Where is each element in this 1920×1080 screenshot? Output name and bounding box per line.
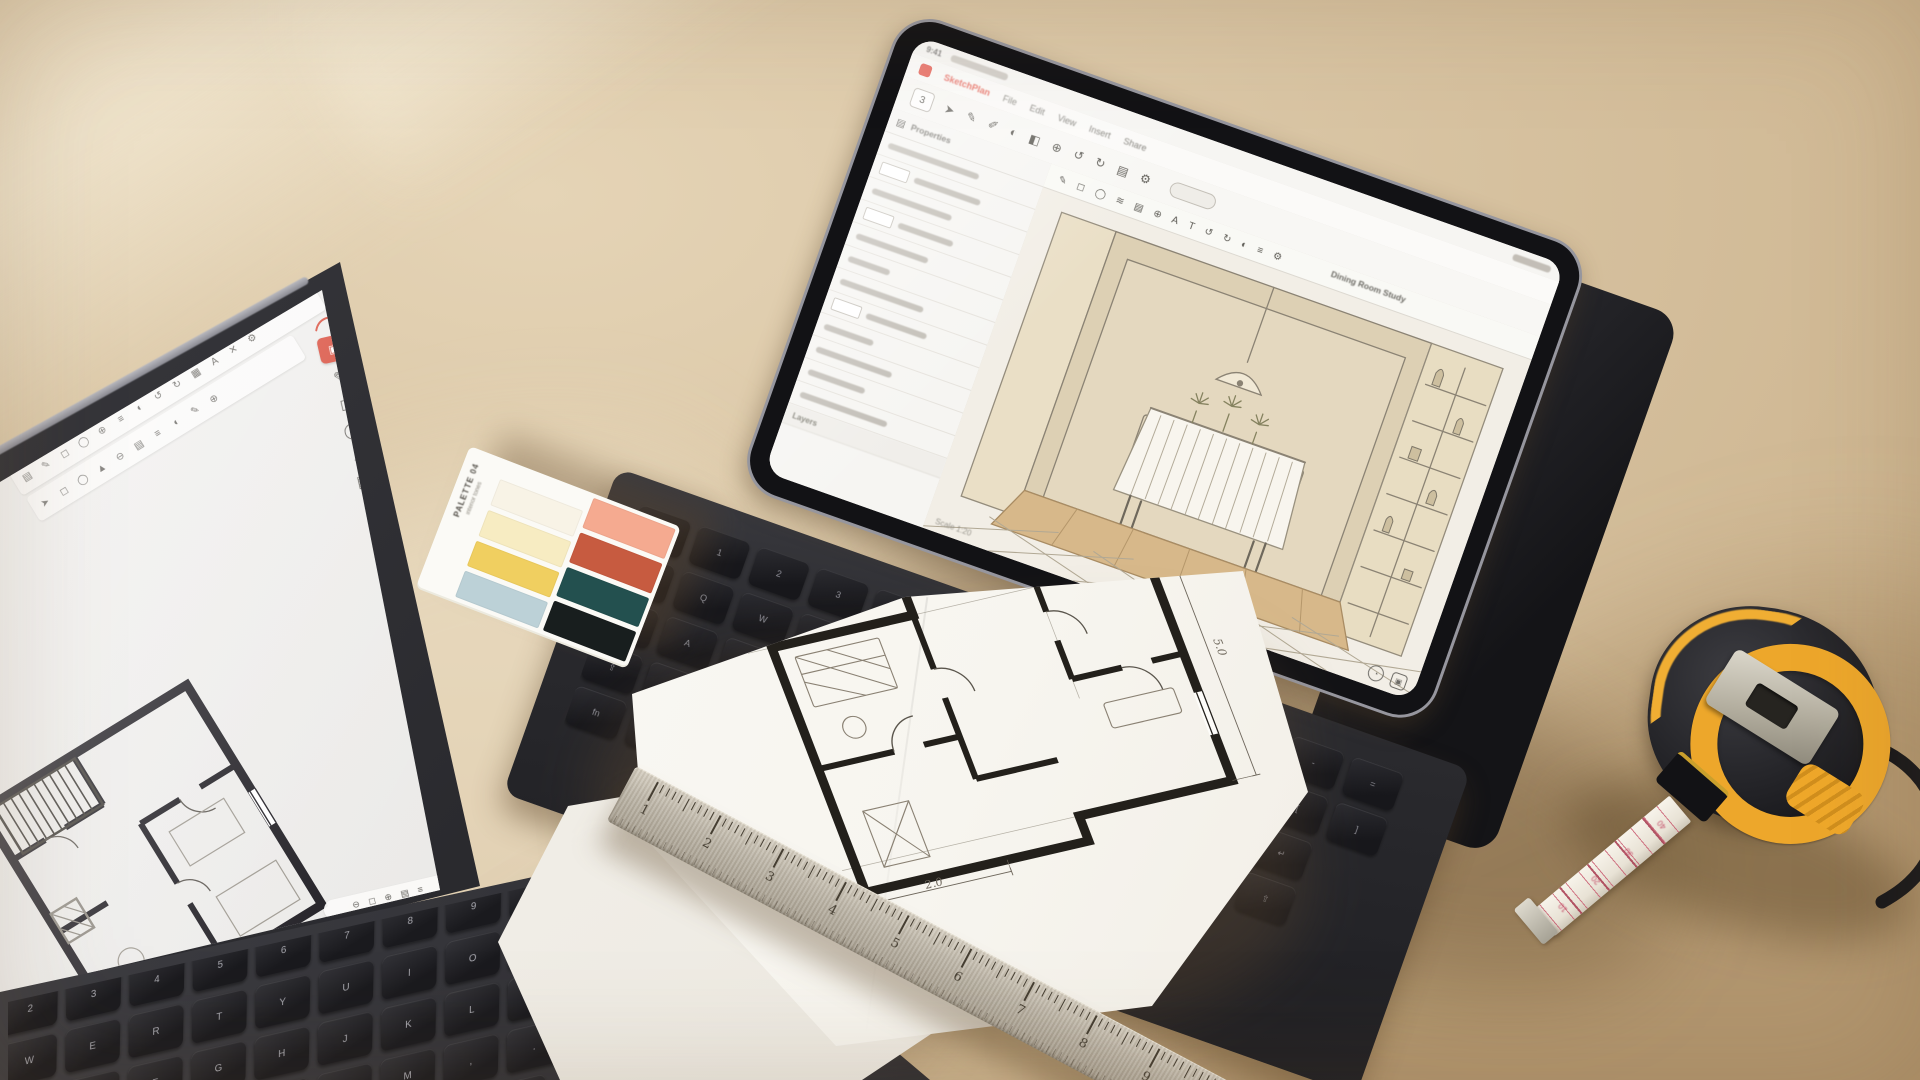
ruler-number: 1 <box>637 802 651 819</box>
tool-icon: 40 <box>1655 818 1668 831</box>
input-box <box>830 297 863 319</box>
tool-icon: ↺ <box>1072 147 1086 164</box>
key: R <box>128 1003 183 1059</box>
tool-icon: ✐ <box>986 117 1000 134</box>
tool-icon: 30 <box>1622 846 1635 859</box>
tool-icon: ↻ <box>1221 232 1233 245</box>
tool-icon: ▤ <box>1115 163 1130 180</box>
key: G <box>191 1040 246 1080</box>
tool-icon: ⊕ <box>1152 208 1164 221</box>
tool-icon: A <box>1170 214 1180 227</box>
tool-icon: ↺ <box>1203 226 1215 239</box>
key: M <box>380 1048 435 1080</box>
key: , <box>443 1033 498 1080</box>
tape-measure <box>1630 596 1920 936</box>
tool-icon: ↻ <box>1093 155 1107 172</box>
menu-item: File <box>1001 93 1018 107</box>
key: L <box>444 981 499 1037</box>
clip-slot <box>1744 682 1799 730</box>
tool-icon: ⚙ <box>1271 250 1283 263</box>
tool-icon: T <box>1187 220 1196 232</box>
tool-icon: ▤ <box>1133 201 1146 215</box>
key: U <box>318 959 373 1015</box>
input-box <box>862 207 895 229</box>
key: H <box>254 1025 309 1080</box>
menu-item: View <box>1056 113 1078 129</box>
key: 2 <box>747 546 811 602</box>
key: F <box>127 1055 182 1080</box>
tool-icon: ◐ <box>1239 239 1248 251</box>
key: E <box>65 1018 120 1074</box>
tool-icon: ◻ <box>1075 180 1087 193</box>
tool-icon: ➤ <box>943 101 957 118</box>
panel-icon: ▤ <box>895 117 908 131</box>
key: ] <box>1325 801 1389 857</box>
key: I <box>382 945 437 1001</box>
tool-icon: 20 <box>1589 873 1602 886</box>
tool-icon: 10 <box>1556 901 1569 914</box>
key: O <box>445 930 500 986</box>
key: W <box>2 1032 57 1080</box>
tool-icon: ≡ <box>1256 244 1265 256</box>
tool-icon: ◐ <box>1008 125 1020 141</box>
menu-item: Share <box>1122 136 1148 153</box>
menu-item: Insert <box>1088 124 1113 141</box>
key: W <box>731 591 795 647</box>
app-logo <box>918 63 933 78</box>
key: Y <box>255 974 310 1030</box>
key: J <box>317 1011 372 1067</box>
key: = <box>1341 756 1405 812</box>
input-box <box>878 161 911 183</box>
tool-icon: ≋ <box>1114 194 1126 207</box>
tool-icon: ✎ <box>1057 174 1069 187</box>
tool-icon: ✎ <box>964 109 978 126</box>
dimension-label: 5.0 <box>1210 637 1229 657</box>
key: T <box>192 988 247 1044</box>
key: N <box>317 1062 372 1080</box>
desk-scene: ▤✎◻◯⊕≡◐↺↻▦A✕⚙ ➤◻◯▲⊖▤≡◐✎⊕ ≡◻◯✕ ▣ ✎◻◯▲▤⊕↺≡… <box>0 0 1920 1080</box>
layer-number-chip: 3 <box>909 87 936 113</box>
menu-item: Edit <box>1028 103 1046 118</box>
key: K <box>381 996 436 1052</box>
tool-icon: ◧ <box>1027 131 1042 148</box>
tool-icon: ⚙ <box>1138 171 1153 188</box>
status-time: 9:41 <box>925 44 943 58</box>
tool-icon: ⊕ <box>1050 139 1064 156</box>
tool-icon: ◯ <box>1093 187 1107 201</box>
